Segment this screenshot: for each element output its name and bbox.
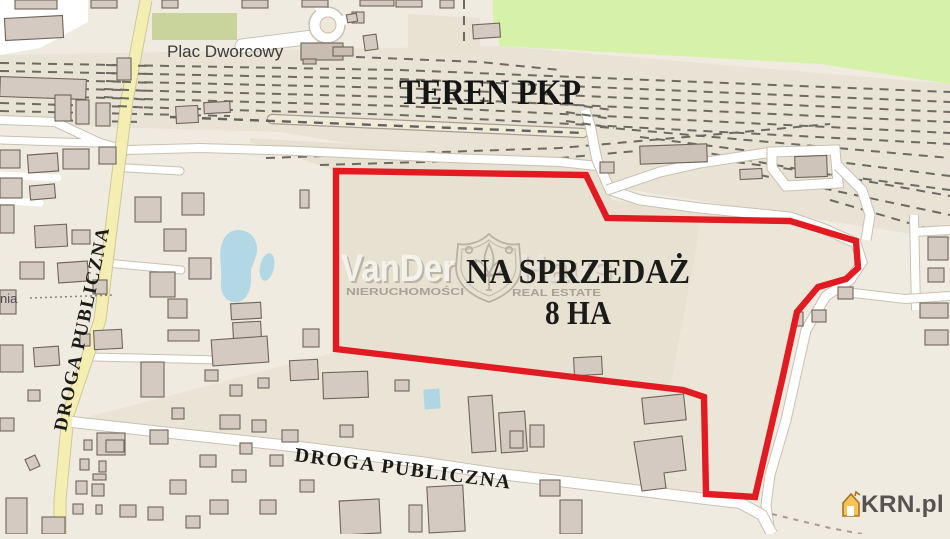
svg-text:8 HA: 8 HA — [545, 295, 611, 332]
svg-text:nia: nia — [0, 291, 18, 306]
svg-text:KRN.pl: KRN.pl — [861, 491, 944, 518]
svg-text:TEREN PKP: TEREN PKP — [399, 72, 581, 112]
svg-text:NIERUCHOMOŚCI: NIERUCHOMOŚCI — [346, 285, 464, 298]
svg-text:Plac Dworcowy: Plac Dworcowy — [167, 42, 284, 61]
svg-text:NA SPRZEDAŻ: NA SPRZEDAŻ — [466, 252, 690, 291]
svg-text:VanDer: VanDer — [341, 248, 455, 290]
